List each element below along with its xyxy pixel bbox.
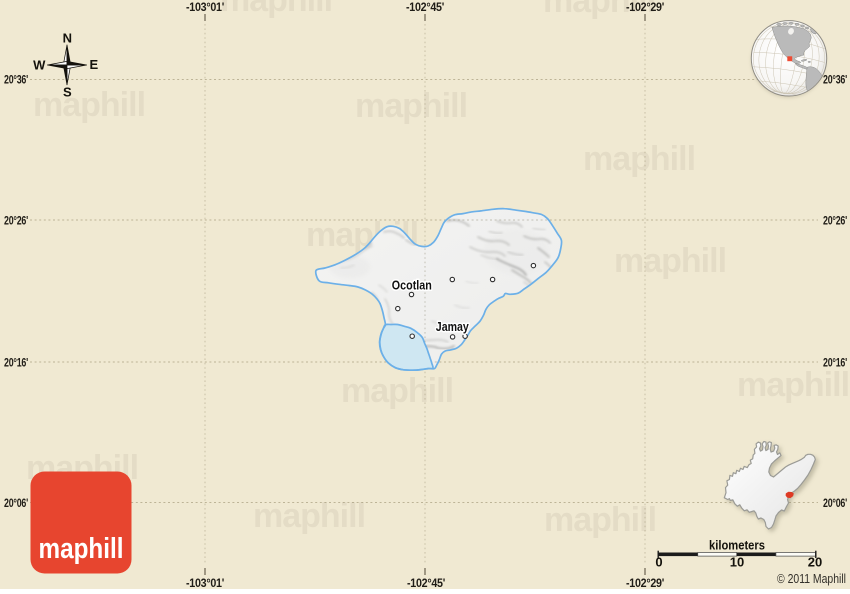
svg-text:-102°29': -102°29' <box>626 576 664 589</box>
svg-text:20°16': 20°16' <box>4 356 28 370</box>
svg-text:maphill: maphill <box>341 372 453 410</box>
svg-text:-102°45': -102°45' <box>407 576 445 589</box>
svg-text:maphill: maphill <box>614 242 726 280</box>
svg-text:W: W <box>33 58 46 73</box>
svg-text:E: E <box>89 57 98 72</box>
svg-text:kilometers: kilometers <box>709 538 765 553</box>
svg-text:-102°45': -102°45' <box>406 0 444 14</box>
svg-text:maphill: maphill <box>220 0 332 19</box>
svg-text:10: 10 <box>730 555 744 570</box>
svg-text:N: N <box>63 31 72 46</box>
svg-text:-102°29': -102°29' <box>626 0 664 14</box>
svg-text:20: 20 <box>808 555 822 570</box>
svg-text:maphill: maphill <box>583 140 695 178</box>
svg-text:20°36': 20°36' <box>823 73 847 87</box>
svg-text:20°36': 20°36' <box>4 73 28 87</box>
svg-text:maphill: maphill <box>355 87 467 125</box>
svg-text:20°06': 20°06' <box>823 496 847 510</box>
svg-text:S: S <box>63 85 72 100</box>
svg-text:20°06': 20°06' <box>4 496 28 510</box>
svg-text:© 2011 Maphill: © 2011 Maphill <box>777 571 846 586</box>
svg-text:maphill: maphill <box>33 86 145 124</box>
svg-text:20°26': 20°26' <box>823 214 847 228</box>
svg-text:maphill: maphill <box>737 366 849 404</box>
svg-text:Jamay: Jamay <box>436 320 469 334</box>
svg-text:maphill: maphill <box>544 501 656 539</box>
svg-text:0: 0 <box>655 555 662 570</box>
svg-text:maphill: maphill <box>39 533 124 565</box>
svg-text:20°26': 20°26' <box>4 214 28 228</box>
svg-text:-103°01': -103°01' <box>186 576 224 589</box>
svg-text:Ocotlan: Ocotlan <box>392 278 432 292</box>
svg-text:20°16': 20°16' <box>823 356 847 370</box>
svg-text:-103°01': -103°01' <box>186 0 224 14</box>
